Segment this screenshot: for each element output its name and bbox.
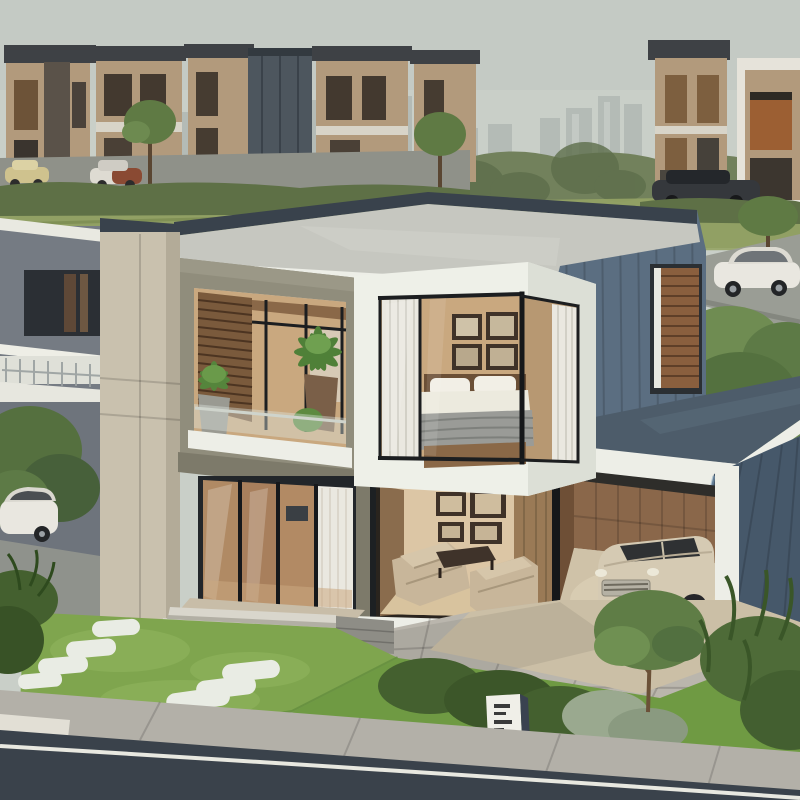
bedroom-curtain-right xyxy=(552,304,578,462)
render-image xyxy=(0,0,800,800)
concrete-column xyxy=(100,232,180,652)
stepping-stone xyxy=(92,618,141,637)
background-houses-right xyxy=(640,40,800,224)
interior-tv xyxy=(286,506,308,521)
bedroom-window-box xyxy=(354,262,596,496)
neighbor-car xyxy=(0,487,58,542)
louver-window xyxy=(650,264,702,394)
glass-sliding-doors xyxy=(198,476,358,612)
balcony-module xyxy=(180,258,358,488)
